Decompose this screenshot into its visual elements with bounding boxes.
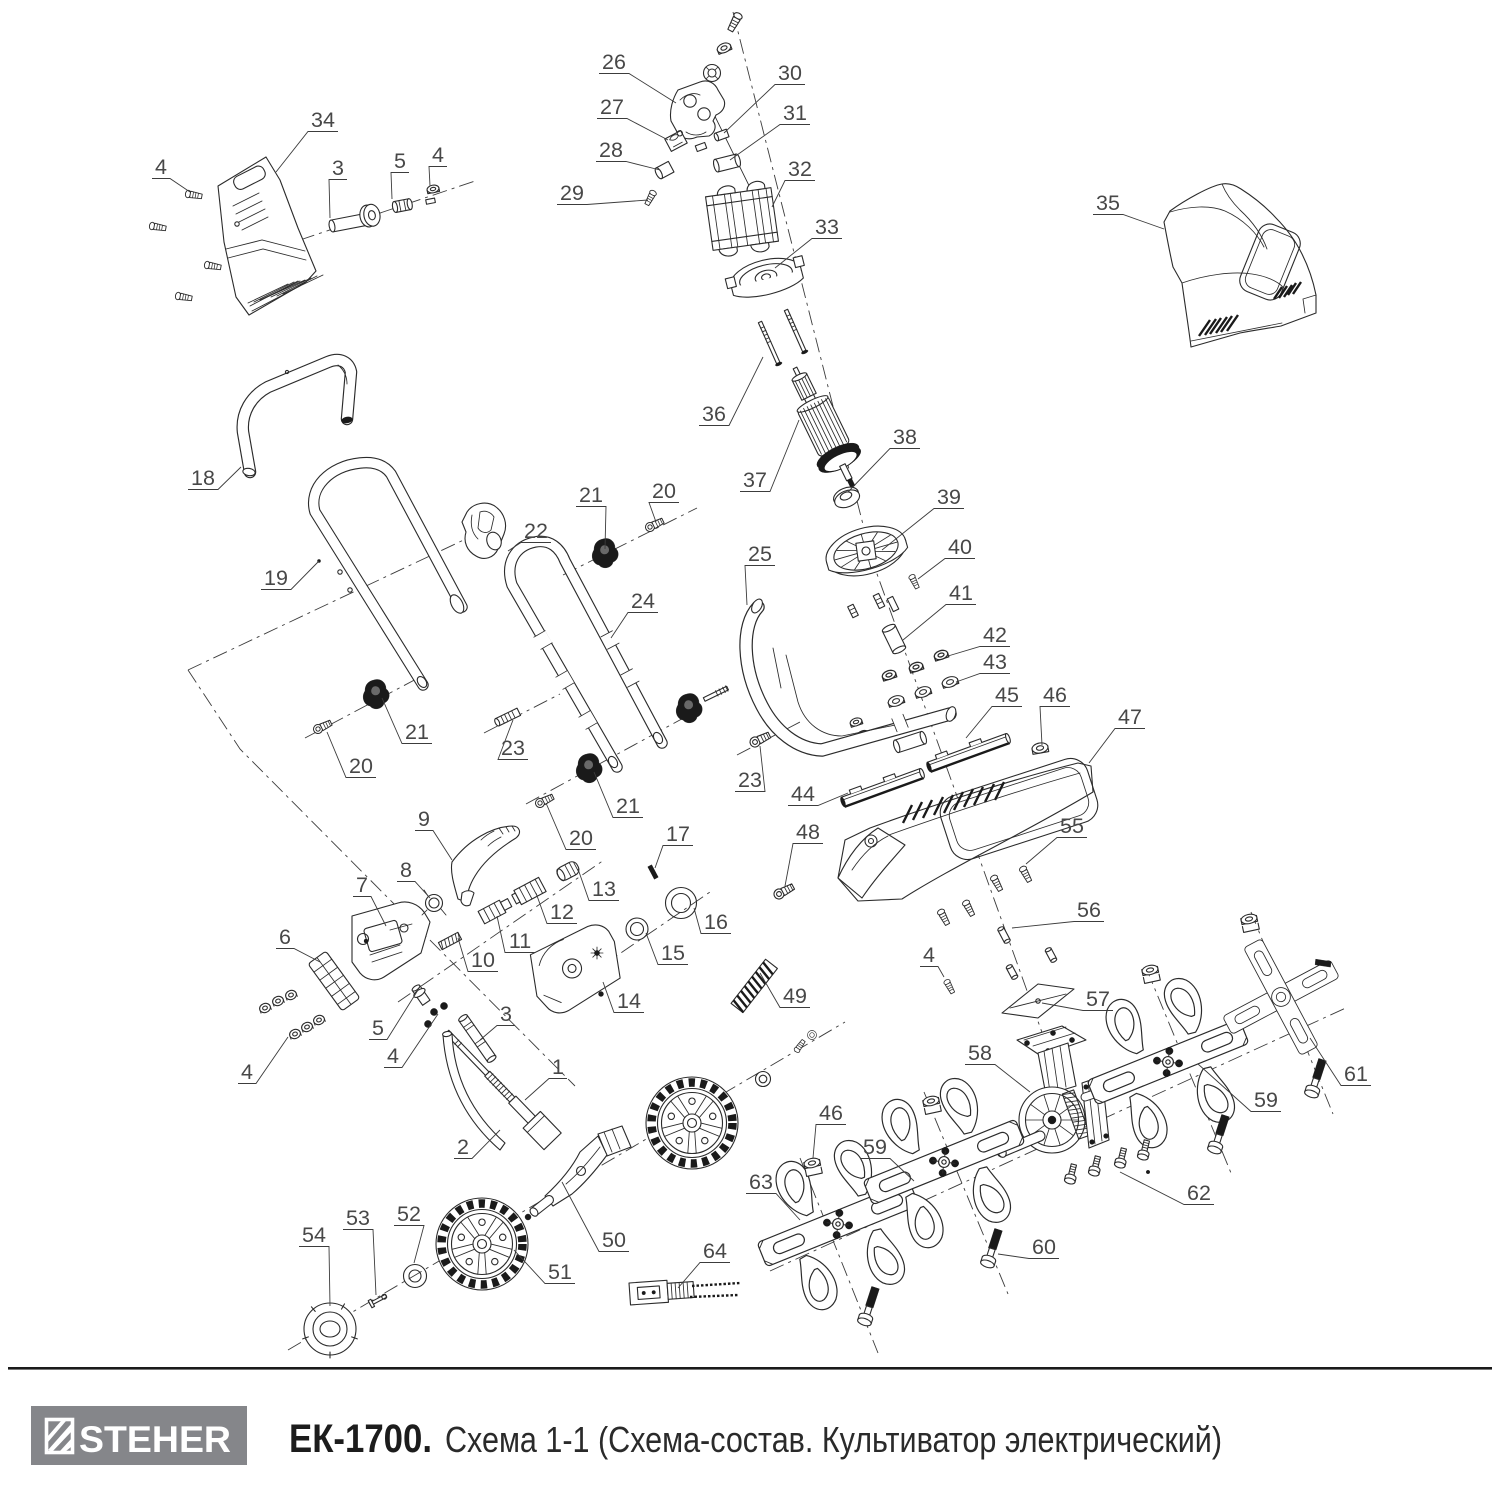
svg-text:24: 24	[631, 589, 655, 613]
svg-text:3: 3	[332, 156, 344, 180]
svg-text:20: 20	[349, 754, 373, 778]
svg-text:62: 62	[1187, 1181, 1211, 1205]
svg-text:16: 16	[704, 910, 728, 934]
svg-text:ЕК-1700.: ЕК-1700.	[289, 1417, 432, 1461]
svg-text:22: 22	[524, 519, 548, 543]
svg-text:52: 52	[397, 1202, 421, 1226]
svg-text:7: 7	[356, 873, 368, 897]
svg-text:20: 20	[652, 479, 676, 503]
svg-text:11: 11	[509, 929, 531, 953]
svg-text:17: 17	[666, 822, 690, 846]
svg-text:4: 4	[241, 1060, 253, 1084]
svg-text:46: 46	[1043, 683, 1067, 707]
svg-text:29: 29	[560, 181, 584, 205]
svg-text:19: 19	[264, 566, 288, 590]
svg-text:31: 31	[783, 101, 807, 125]
svg-text:35: 35	[1096, 191, 1120, 215]
svg-text:49: 49	[783, 984, 807, 1008]
svg-text:43: 43	[983, 650, 1007, 674]
svg-text:53: 53	[346, 1206, 370, 1230]
svg-text:54: 54	[302, 1223, 326, 1247]
svg-text:47: 47	[1118, 705, 1142, 729]
svg-text:40: 40	[948, 535, 972, 559]
svg-text:4: 4	[923, 943, 935, 967]
svg-text:30: 30	[778, 61, 802, 85]
svg-text:9: 9	[418, 807, 430, 831]
svg-text:2: 2	[457, 1135, 469, 1159]
svg-text:21: 21	[616, 794, 640, 818]
svg-text:27: 27	[600, 95, 624, 119]
svg-text:13: 13	[592, 877, 616, 901]
svg-text:21: 21	[579, 483, 603, 507]
svg-text:61: 61	[1344, 1062, 1368, 1086]
svg-text:1: 1	[552, 1055, 564, 1079]
svg-text:33: 33	[815, 215, 839, 239]
svg-text:57: 57	[1086, 987, 1110, 1011]
svg-text:50: 50	[602, 1228, 626, 1252]
svg-text:21: 21	[405, 720, 429, 744]
svg-text:63: 63	[749, 1170, 773, 1194]
svg-text:56: 56	[1077, 898, 1101, 922]
svg-text:55: 55	[1060, 814, 1084, 838]
svg-text:3: 3	[500, 1002, 512, 1026]
svg-text:42: 42	[983, 623, 1007, 647]
svg-text:4: 4	[387, 1044, 399, 1068]
svg-text:18: 18	[191, 466, 215, 490]
svg-text:STEHER: STEHER	[79, 1419, 231, 1460]
svg-text:5: 5	[372, 1016, 384, 1040]
svg-text:46: 46	[819, 1101, 843, 1125]
svg-text:39: 39	[937, 485, 961, 509]
svg-text:Схема 1-1 (Схема-состав. Культ: Схема 1-1 (Схема-состав. Культиватор эле…	[445, 1419, 1222, 1460]
svg-text:25: 25	[748, 542, 772, 566]
svg-text:37: 37	[743, 468, 767, 492]
svg-text:45: 45	[995, 683, 1019, 707]
svg-text:58: 58	[968, 1041, 992, 1065]
svg-text:26: 26	[602, 50, 626, 74]
svg-text:59: 59	[1254, 1088, 1278, 1112]
svg-text:41: 41	[949, 581, 973, 605]
svg-text:51: 51	[548, 1260, 572, 1284]
svg-text:4: 4	[432, 143, 444, 167]
svg-text:5: 5	[394, 149, 406, 173]
svg-text:23: 23	[738, 768, 762, 792]
svg-text:64: 64	[703, 1239, 727, 1263]
svg-text:38: 38	[893, 425, 917, 449]
svg-text:6: 6	[279, 925, 291, 949]
svg-text:8: 8	[400, 858, 412, 882]
svg-text:32: 32	[788, 157, 812, 181]
svg-text:12: 12	[550, 900, 574, 924]
svg-text:34: 34	[311, 108, 335, 132]
svg-text:20: 20	[569, 826, 593, 850]
svg-text:15: 15	[661, 941, 685, 965]
svg-text:44: 44	[791, 782, 815, 806]
svg-text:60: 60	[1032, 1235, 1056, 1259]
svg-text:59: 59	[863, 1135, 887, 1159]
svg-text:48: 48	[796, 820, 820, 844]
svg-text:36: 36	[702, 402, 726, 426]
svg-text:28: 28	[599, 138, 623, 162]
svg-text:4: 4	[155, 155, 167, 179]
svg-text:14: 14	[617, 989, 641, 1013]
svg-text:10: 10	[471, 948, 495, 972]
svg-text:23: 23	[501, 736, 525, 760]
